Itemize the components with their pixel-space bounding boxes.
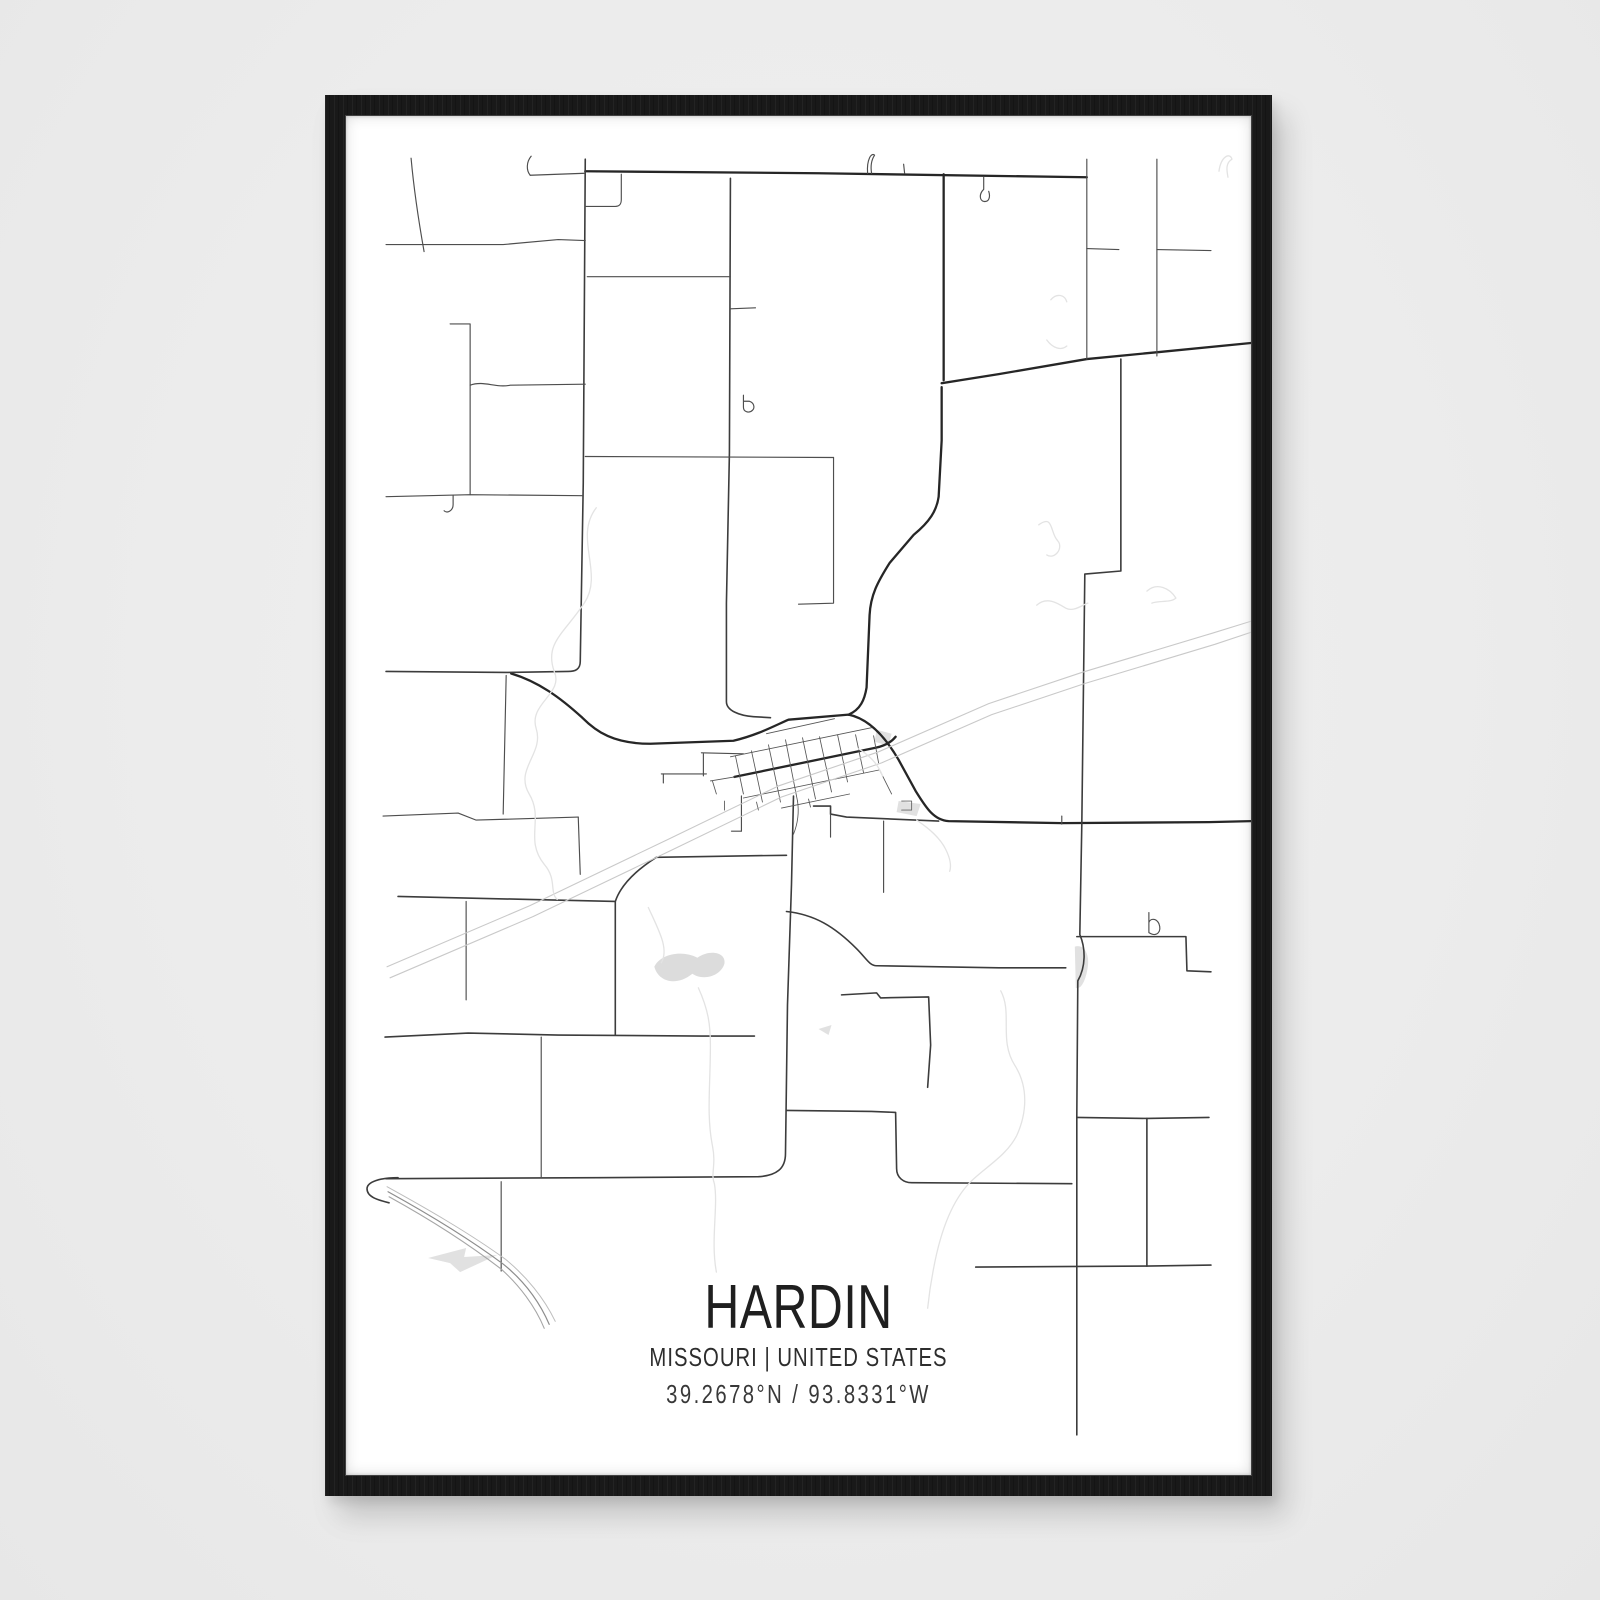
wall-background: HARDIN MISSOURI | UNITED STATES 39.2678°… xyxy=(0,0,1600,1600)
map-poster: HARDIN MISSOURI | UNITED STATES 39.2678°… xyxy=(346,116,1251,1475)
city-map xyxy=(346,116,1251,1475)
poster-frame: HARDIN MISSOURI | UNITED STATES 39.2678°… xyxy=(325,95,1272,1496)
